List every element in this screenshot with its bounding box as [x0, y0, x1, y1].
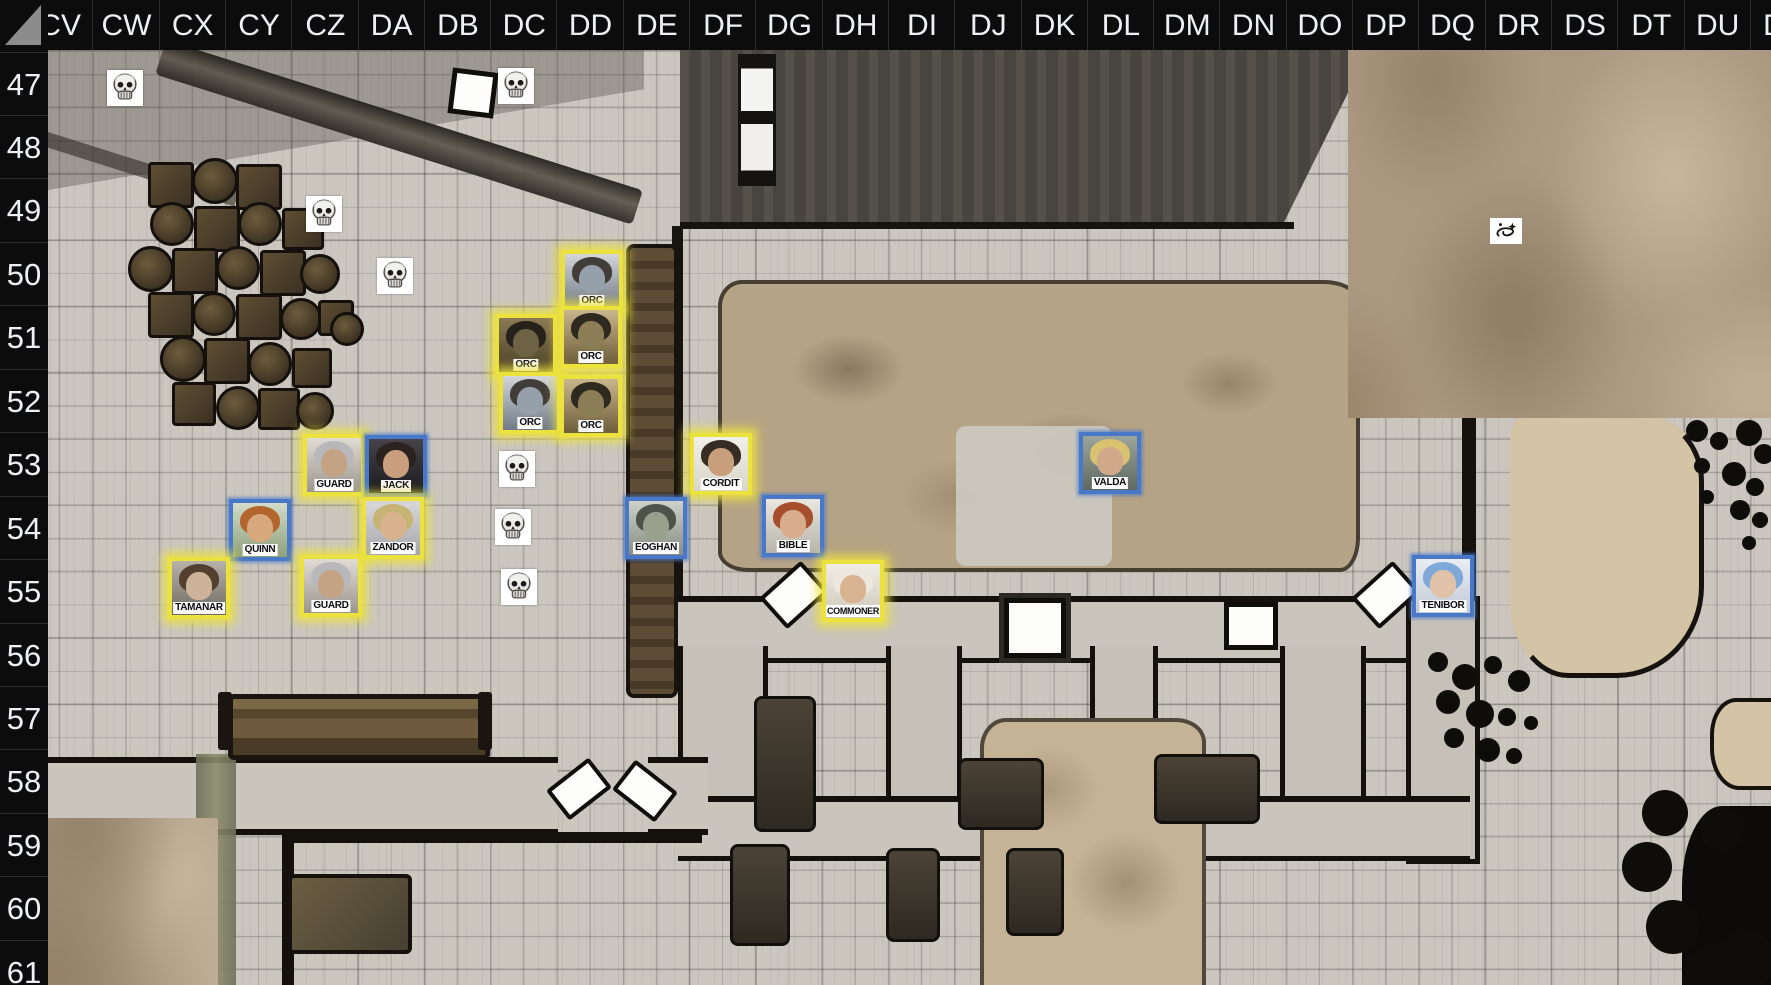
rock — [1444, 728, 1464, 748]
barrel — [330, 312, 364, 346]
portrait-face — [708, 448, 734, 476]
bed — [1154, 754, 1260, 824]
rock — [1524, 716, 1538, 730]
barrel — [192, 292, 236, 336]
row-header-bar: 474849505152535455565758596061 — [0, 0, 48, 985]
column-header-DV[interactable]: DV — [1750, 0, 1771, 50]
token-quinn[interactable]: QUINN — [229, 499, 291, 561]
token-label: JACK — [381, 480, 411, 492]
column-header-DS[interactable]: DS — [1551, 0, 1618, 50]
column-header-CX[interactable]: CX — [159, 0, 226, 50]
column-header-DQ[interactable]: DQ — [1418, 0, 1485, 50]
row-header-55[interactable]: 55 — [0, 559, 48, 623]
cave-floor-tan — [1510, 416, 1704, 678]
cave-floor-tan-small — [1710, 698, 1771, 790]
portrait-face — [840, 575, 866, 603]
skull-token-DC55[interactable] — [501, 569, 537, 605]
crate — [194, 206, 240, 252]
row-header-53[interactable]: 53 — [0, 432, 48, 496]
row-header-52[interactable]: 52 — [0, 369, 48, 433]
rock — [1476, 738, 1500, 762]
skull-token-CW47[interactable] — [107, 70, 143, 106]
crate — [236, 294, 282, 340]
token-cordit[interactable]: CORDIT — [690, 433, 752, 495]
column-header-DO[interactable]: DO — [1286, 0, 1353, 50]
column-header-DE[interactable]: DE — [623, 0, 690, 50]
barrel — [128, 246, 174, 292]
pillar — [738, 54, 776, 186]
rock — [1622, 842, 1672, 892]
row-header-54[interactable]: 54 — [0, 496, 48, 560]
barrel — [150, 202, 194, 246]
token-portrait: JACK — [369, 439, 423, 493]
column-header-DG[interactable]: DG — [755, 0, 822, 50]
bed — [730, 844, 790, 946]
token-label: TENIBOR — [1420, 600, 1467, 612]
column-header-DP[interactable]: DP — [1352, 0, 1419, 50]
token-commoner[interactable]: COMMONER — [822, 560, 884, 622]
row-header-48[interactable]: 48 — [0, 115, 48, 179]
portrait-face — [321, 449, 347, 477]
token-portrait: BIBLE — [766, 499, 820, 553]
token-eoghan[interactable]: EOGHAN — [625, 497, 687, 559]
row-header-57[interactable]: 57 — [0, 686, 48, 750]
token-orc[interactable]: ORC — [560, 375, 622, 437]
portrait-face — [1097, 447, 1123, 475]
rock — [1742, 536, 1756, 550]
token-label: ORC — [578, 351, 603, 363]
token-portrait: GUARD — [307, 438, 361, 492]
token-portrait: GUARD — [304, 559, 358, 613]
portrait-face — [247, 514, 273, 542]
column-header-DH[interactable]: DH — [822, 0, 889, 50]
row-header-47[interactable]: 47 — [0, 52, 48, 116]
token-portrait: ORC — [499, 318, 553, 372]
token-orc[interactable]: ORC — [495, 314, 557, 376]
skull-token-CY49[interactable] — [306, 196, 342, 232]
column-header-DA[interactable]: DA — [358, 0, 425, 50]
token-portrait: VALDA — [1083, 436, 1137, 490]
rock — [1722, 462, 1746, 486]
token-guard[interactable]: GUARD — [300, 555, 362, 617]
battle-map[interactable]: ORCORCORCORCORCGUARDJACKQUINNZANDORTAMAN… — [0, 0, 1771, 985]
row-header-60[interactable]: 60 — [0, 876, 48, 940]
token-label: QUINN — [243, 544, 278, 556]
rock — [1754, 444, 1771, 464]
token-label: ORC — [513, 359, 538, 371]
token-label: ZANDOR — [371, 542, 416, 554]
row-header-59[interactable]: 59 — [0, 813, 48, 877]
bench — [228, 694, 490, 760]
token-label: ORC — [578, 420, 603, 432]
portrait-face — [318, 570, 344, 598]
barrel — [216, 246, 260, 290]
token-tamanar[interactable]: TAMANAR — [168, 557, 230, 619]
token-portrait: ORC — [564, 310, 618, 364]
token-label: GUARD — [314, 479, 353, 491]
column-header-DI[interactable]: DI — [888, 0, 955, 50]
barrel — [280, 298, 322, 340]
token-orc[interactable]: ORC — [561, 250, 623, 312]
portrait-face — [1430, 570, 1456, 598]
token-portrait: ORC — [564, 379, 618, 433]
fog-of-war-top-right — [1348, 50, 1771, 418]
column-header-DL[interactable]: DL — [1087, 0, 1154, 50]
portrait-face — [643, 512, 669, 540]
rock — [1694, 458, 1710, 474]
portrait-face — [380, 512, 406, 540]
portrait-face — [579, 265, 605, 293]
rock — [1646, 900, 1700, 954]
crate — [148, 292, 194, 338]
rock — [1686, 420, 1708, 442]
portrait-face — [383, 450, 409, 478]
token-portrait: QUINN — [233, 503, 287, 557]
rock — [1642, 790, 1688, 836]
column-header-DJ[interactable]: DJ — [954, 0, 1021, 50]
barrel — [192, 158, 238, 204]
column-header-DK[interactable]: DK — [1021, 0, 1088, 50]
skull-token-DC53[interactable] — [499, 451, 535, 487]
column-header-DN[interactable]: DN — [1219, 0, 1286, 50]
rock — [1752, 512, 1768, 528]
column-header-CW[interactable]: CW — [92, 0, 159, 50]
column-header-CY[interactable]: CY — [225, 0, 292, 50]
row-header-58[interactable]: 58 — [0, 749, 48, 813]
portrait-face — [186, 572, 212, 600]
token-portrait: ORC — [503, 376, 557, 430]
token-portrait: TENIBOR — [1416, 559, 1470, 613]
token-label: TAMANAR — [173, 602, 225, 614]
barrel — [216, 386, 260, 430]
token-orc[interactable]: ORC — [560, 306, 622, 368]
portrait-face — [578, 321, 604, 349]
row-header-61[interactable]: 61 — [0, 940, 48, 985]
portrait-face — [513, 329, 539, 357]
token-portrait: COMMONER — [826, 564, 880, 618]
bed — [754, 696, 816, 832]
door-marker[interactable] — [447, 67, 498, 118]
token-portrait: CORDIT — [694, 437, 748, 491]
rock — [1746, 478, 1764, 496]
barrel — [300, 254, 340, 294]
column-header-CZ[interactable]: CZ — [291, 0, 358, 50]
galaxy-marker[interactable] — [1490, 218, 1522, 244]
corner-triangle-icon — [5, 5, 41, 45]
crate — [292, 348, 332, 388]
token-portrait: TAMANAR — [172, 561, 226, 615]
column-header-DB[interactable]: DB — [424, 0, 491, 50]
room-wall-h — [282, 832, 702, 843]
column-header-DU[interactable]: DU — [1684, 0, 1751, 50]
row-header-56[interactable]: 56 — [0, 623, 48, 687]
barrel — [296, 392, 334, 430]
token-label: COMMONER — [826, 605, 880, 617]
rock — [1700, 490, 1714, 504]
crate — [204, 338, 250, 384]
column-header-bar: CVCWCXCYCZDADBDCDDDEDFDGDHDIDJDKDLDMDNDO… — [0, 0, 1771, 50]
token-label: CORDIT — [701, 478, 742, 490]
rock — [1736, 420, 1762, 446]
bench-post — [218, 692, 232, 750]
portrait-face — [517, 387, 543, 415]
token-label: BIBLE — [777, 540, 810, 552]
row-header-49[interactable]: 49 — [0, 178, 48, 242]
token-portrait: EOGHAN — [629, 501, 683, 555]
skull-token-CZ50[interactable] — [377, 258, 413, 294]
barrel — [160, 336, 206, 382]
select-all-corner[interactable] — [0, 0, 48, 50]
rock — [1498, 708, 1516, 726]
crate-stack — [288, 874, 412, 954]
rock — [1700, 808, 1744, 852]
rock — [1730, 500, 1750, 520]
rock — [1452, 664, 1478, 690]
rock — [1716, 930, 1771, 985]
bed — [886, 848, 940, 942]
column-header-DT[interactable]: DT — [1617, 0, 1684, 50]
portrait-face — [780, 510, 806, 538]
token-tenibor[interactable]: TENIBOR — [1412, 555, 1474, 617]
barrel — [238, 202, 282, 246]
row-header-50[interactable]: 50 — [0, 242, 48, 306]
token-portrait: ZANDOR — [366, 501, 420, 555]
rock — [1466, 700, 1494, 728]
token-bible[interactable]: BIBLE — [762, 495, 824, 557]
rock — [1484, 656, 1502, 674]
roof-band — [680, 50, 1348, 228]
token-label: EOGHAN — [633, 542, 679, 554]
column-header-DF[interactable]: DF — [689, 0, 756, 50]
token-label: GUARD — [311, 600, 350, 612]
token-jack[interactable]: JACK — [365, 435, 427, 497]
skull-token-DC54[interactable] — [495, 509, 531, 545]
token-label: ORC — [517, 417, 542, 429]
rock — [1428, 652, 1448, 672]
token-orc[interactable]: ORC — [499, 372, 561, 434]
wood-wall — [626, 244, 678, 698]
crate — [258, 388, 300, 430]
row-header-51[interactable]: 51 — [0, 305, 48, 369]
column-header-DC[interactable]: DC — [490, 0, 557, 50]
roof-edge — [680, 222, 1294, 229]
token-zandor[interactable]: ZANDOR — [362, 497, 424, 559]
fog-of-war-bottom-left — [48, 818, 218, 985]
column-header-DM[interactable]: DM — [1153, 0, 1220, 50]
vtt-canvas: ORCORCORCORCORCGUARDJACKQUINNZANDORTAMAN… — [0, 0, 1771, 985]
rock — [1506, 748, 1522, 764]
token-guard[interactable]: GUARD — [303, 434, 365, 496]
crate — [172, 248, 218, 294]
crate — [172, 382, 216, 426]
rock — [1710, 432, 1728, 450]
bed — [958, 758, 1044, 830]
column-header-DD[interactable]: DD — [556, 0, 623, 50]
bed — [1006, 848, 1064, 936]
bench-post — [478, 692, 492, 750]
skull-token-DC47[interactable] — [498, 68, 534, 104]
column-header-DR[interactable]: DR — [1485, 0, 1552, 50]
token-portrait: ORC — [565, 254, 619, 308]
barrel — [248, 342, 292, 386]
portrait-face — [578, 390, 604, 418]
token-valda[interactable]: VALDA — [1079, 432, 1141, 494]
rock — [1436, 690, 1460, 714]
token-label: VALDA — [1092, 477, 1128, 489]
door-marker[interactable] — [1004, 598, 1066, 658]
door-marker[interactable] — [1224, 602, 1278, 650]
rock — [1508, 670, 1530, 692]
